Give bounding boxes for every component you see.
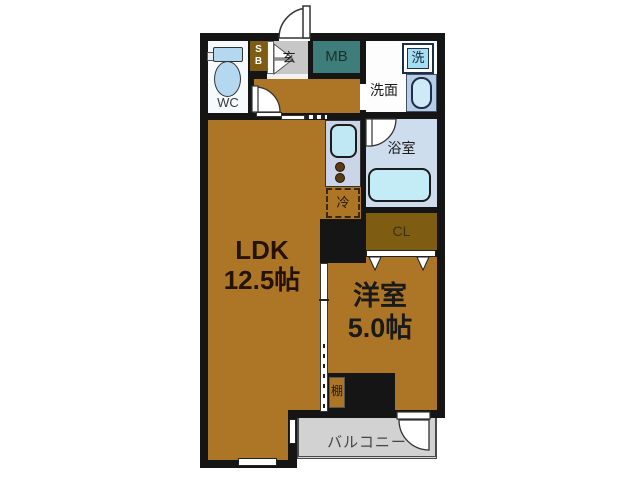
bedroom-area: 5.0帖 bbox=[328, 312, 432, 344]
label-washing-machine: 洗 bbox=[402, 51, 434, 65]
partition-door-leaf bbox=[323, 344, 325, 408]
window-ldk-south bbox=[238, 458, 277, 466]
hall-slider-panel-1 bbox=[256, 112, 282, 117]
shoe-box-door-panel bbox=[267, 41, 274, 74]
wall-section-kitchen-south bbox=[320, 219, 366, 263]
label-balcony: バルコニー bbox=[299, 435, 435, 452]
label-closet: CL bbox=[366, 224, 437, 239]
label-shoe-box: S B bbox=[250, 44, 267, 68]
hall-slider-track bbox=[305, 115, 327, 119]
label-shelf: 棚 bbox=[329, 385, 345, 398]
ldk-name: LDK bbox=[200, 235, 324, 265]
toilet-tank-icon bbox=[213, 47, 243, 62]
label-fridge-space: 冷 bbox=[325, 196, 361, 210]
window-ldk-balcony bbox=[289, 419, 296, 444]
label-ldk: LDK 12.5帖 bbox=[200, 235, 324, 295]
label-bathroom: 浴室 bbox=[366, 141, 437, 156]
bedroom-name: 洋室 bbox=[328, 280, 432, 312]
label-wc: WC bbox=[208, 96, 248, 110]
closet-door-strip bbox=[366, 250, 436, 257]
label-entrance: 玄 bbox=[274, 51, 304, 65]
kitchen-sink-icon bbox=[330, 124, 357, 158]
label-meter-box: MB bbox=[313, 49, 360, 66]
ldk-area: 12.5帖 bbox=[200, 265, 324, 295]
toilet-bowl-icon bbox=[214, 61, 241, 97]
bathtub-icon bbox=[368, 168, 431, 202]
label-bedroom: 洋室 5.0帖 bbox=[328, 280, 432, 344]
front-door-opening bbox=[279, 33, 310, 41]
washroom-sink-icon bbox=[411, 77, 432, 109]
hallway bbox=[254, 79, 360, 113]
hall-slider-panel-2 bbox=[281, 115, 305, 120]
floor-plan: WC S B 玄 MB 洗 洗面 浴室 CL 冷 棚 LDK 12.5帖 洋室 … bbox=[0, 0, 640, 480]
label-washroom: 洗面 bbox=[362, 83, 406, 98]
